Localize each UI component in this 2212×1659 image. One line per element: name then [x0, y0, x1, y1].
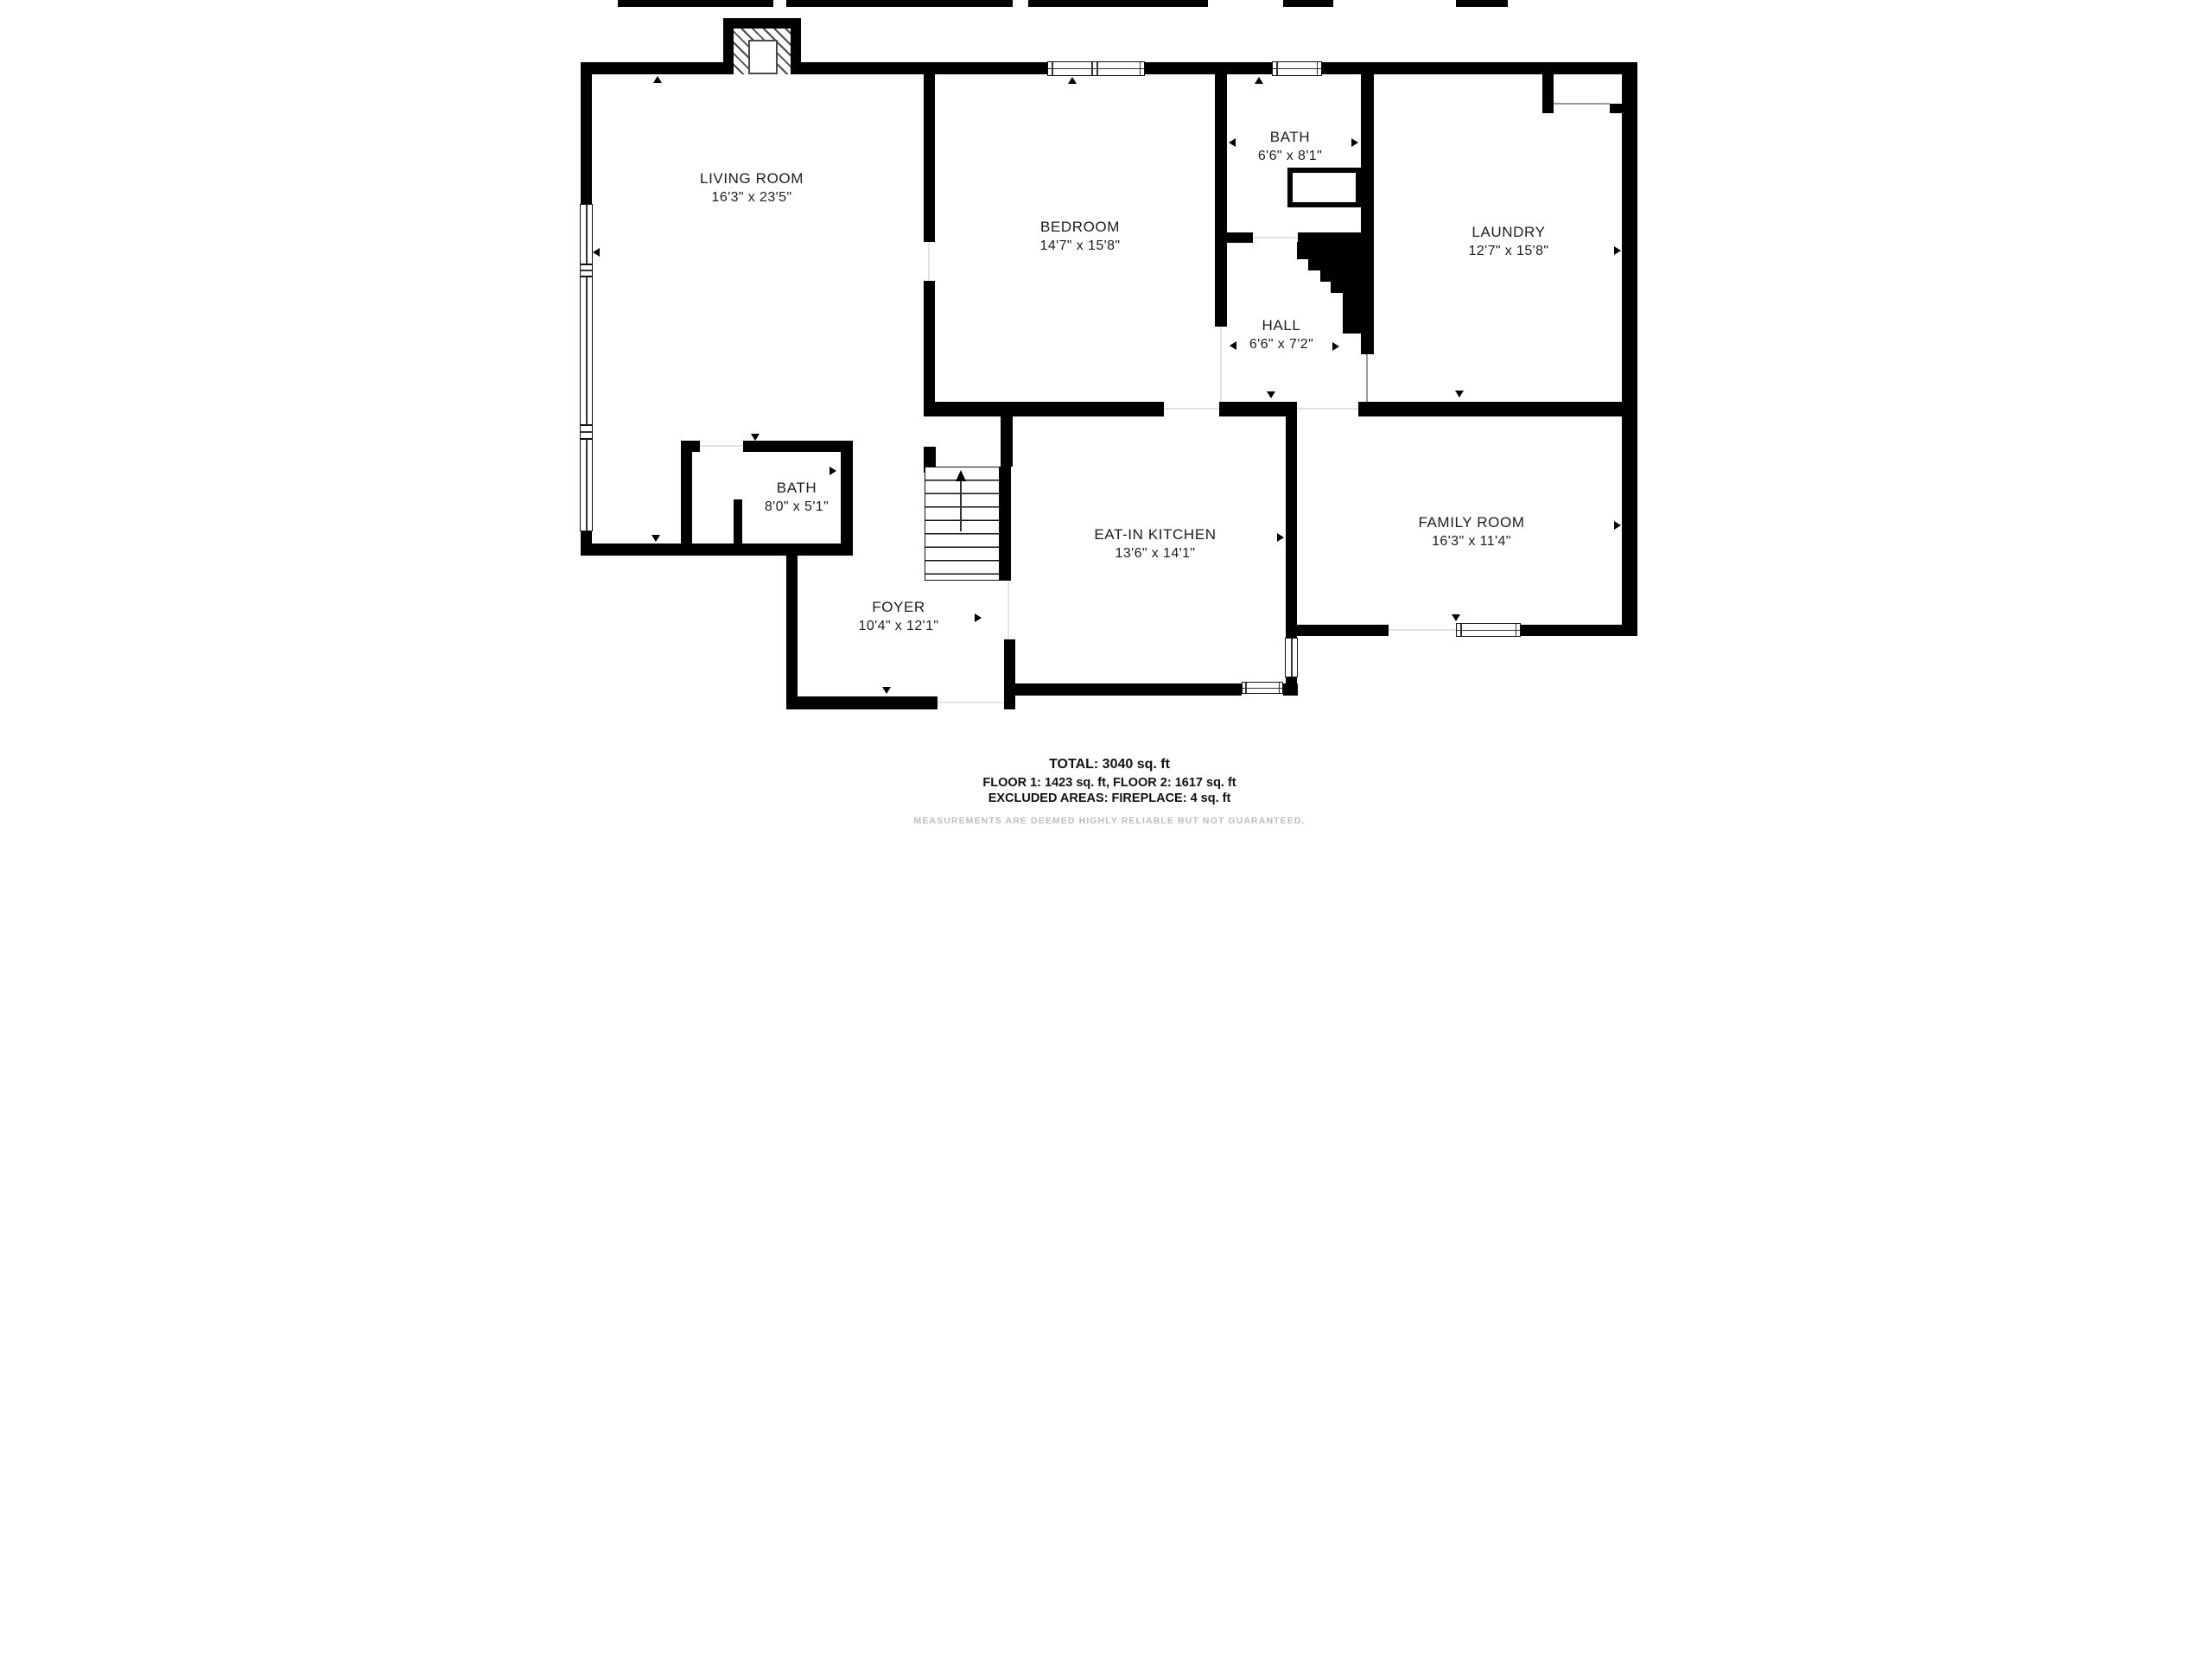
window-mullion	[1091, 62, 1093, 75]
footer-floors: FLOOR 1: 1423 sq. ft, FLOOR 2: 1617 sq. …	[982, 776, 1236, 790]
door-marker	[829, 467, 836, 475]
door-marker	[1217, 227, 1224, 236]
door-marker	[652, 535, 660, 542]
wall-segment	[786, 556, 798, 709]
wall-segment	[743, 441, 853, 452]
wall-segment	[1215, 243, 1227, 327]
opening-line	[1297, 408, 1358, 410]
door-marker	[1614, 521, 1621, 530]
room-dims: 6'6" x 7'2"	[1249, 335, 1313, 354]
room-label-bath-upper: BATH 6'6" x 8'1"	[1258, 128, 1322, 166]
window-mullion	[1279, 683, 1281, 693]
room-dims: 16'3" x 23'5"	[700, 188, 804, 207]
room-label-hall: HALL 6'6" x 7'2"	[1249, 316, 1313, 354]
window	[580, 204, 593, 264]
room-name: HALL	[1249, 316, 1313, 335]
window	[580, 439, 593, 531]
wall-thin-line	[1366, 354, 1368, 402]
room-label-eat-in-kitchen: EAT-IN KITCHEN 13'6" x 14'1"	[1094, 525, 1216, 563]
wall-segment	[681, 441, 700, 452]
door-marker	[1229, 138, 1236, 147]
window-mullion	[586, 440, 588, 531]
wall-segment	[1286, 677, 1297, 696]
room-dims: 13'6" x 14'1"	[1094, 544, 1216, 563]
wall-segment	[581, 74, 592, 204]
upper-stairs	[1308, 259, 1343, 270]
stairs-side-wall	[1000, 467, 1011, 581]
wall-segment	[1004, 683, 1242, 696]
room-dims: 14'7" x 15'8"	[1040, 237, 1121, 256]
door-marker	[1230, 341, 1236, 350]
opening-line	[1389, 629, 1456, 631]
window	[1285, 638, 1298, 677]
room-label-bath-lower: BATH 8'0" x 5'1"	[765, 479, 829, 517]
wall-segment	[1219, 402, 1297, 416]
wall-segment	[841, 441, 853, 556]
footer-disclaimer: MEASUREMENTS ARE DEEMED HIGHLY RELIABLE …	[913, 816, 1305, 826]
wall-segment	[924, 402, 1164, 416]
wall-segment	[1283, 0, 1333, 7]
wall-segment	[581, 543, 853, 556]
window-mullion	[1460, 624, 1462, 636]
upper-stairs	[1297, 242, 1361, 259]
wall-segment	[1622, 62, 1637, 636]
upper-stairs	[1331, 282, 1343, 293]
wall-segment	[1286, 625, 1389, 636]
door-marker	[1452, 614, 1460, 621]
stairs-up-arrow	[960, 481, 962, 531]
window-mullion	[1273, 68, 1321, 69]
room-dims: 12'7" x 15'8"	[1469, 242, 1549, 261]
door-marker	[1267, 391, 1275, 398]
door-marker	[1255, 77, 1263, 84]
door-marker	[751, 434, 760, 441]
floor-plan-page: LIVING ROOM 16'3" x 23'5" BEDROOM 14'7" …	[553, 0, 1659, 829]
opening-line	[1253, 237, 1298, 238]
door-marker	[1614, 246, 1621, 255]
window-band	[580, 425, 593, 439]
upper-stairs	[1343, 259, 1361, 321]
window-mullion	[1245, 683, 1247, 693]
room-dims: 8'0" x 5'1"	[765, 498, 829, 517]
room-name: FAMILY ROOM	[1418, 513, 1524, 532]
opening-line	[928, 242, 930, 281]
wall-segment	[1358, 402, 1633, 416]
wall-segment	[924, 74, 935, 242]
wall-segment	[786, 696, 938, 709]
room-name: FOYER	[859, 598, 939, 617]
door-marker	[1351, 138, 1358, 147]
stairs-up-arrow-head	[956, 470, 966, 481]
room-label-family-room: FAMILY ROOM 16'3" x 11'4"	[1418, 513, 1524, 551]
window-mullion	[586, 205, 588, 264]
wall-segment	[1215, 74, 1227, 232]
wall-segment	[1361, 74, 1374, 354]
door-marker	[882, 687, 891, 694]
door-marker	[1332, 342, 1339, 351]
door-marker	[975, 613, 982, 622]
room-label-laundry: LAUNDRY 12'7" x 15'8"	[1469, 223, 1549, 261]
opening-line	[1164, 408, 1219, 410]
wall-segment	[924, 281, 935, 402]
upper-stairs	[1320, 270, 1343, 282]
room-dims: 6'6" x 8'1"	[1258, 147, 1322, 166]
room-label-living-room: LIVING ROOM 16'3" x 23'5"	[700, 169, 804, 207]
door-marker	[1455, 391, 1464, 397]
closet-wall	[1610, 104, 1622, 113]
opening-line	[1220, 327, 1222, 402]
wall-segment	[1028, 0, 1208, 7]
opening-line	[1007, 581, 1009, 639]
bath-vanity	[1287, 168, 1361, 207]
wall-segment	[618, 0, 773, 7]
window-mullion	[581, 431, 592, 433]
room-name: EAT-IN KITCHEN	[1094, 525, 1216, 544]
wall-segment	[1286, 416, 1297, 638]
door-marker	[1277, 533, 1284, 542]
window	[580, 276, 593, 425]
wall-segment	[681, 441, 692, 556]
wall-segment	[1004, 639, 1015, 709]
window	[1242, 682, 1283, 694]
upper-stairs	[1343, 321, 1361, 334]
room-label-foyer: FOYER 10'4" x 12'1"	[859, 598, 939, 636]
opening-line	[938, 702, 1004, 703]
wall-segment	[1521, 625, 1633, 636]
footer-excluded: EXCLUDED AREAS: FIREPLACE: 4 sq. ft	[988, 791, 1231, 805]
window-mullion	[1276, 62, 1278, 75]
door-marker	[653, 76, 662, 83]
footer-total: TOTAL: 3040 sq. ft	[1049, 757, 1170, 772]
window-band	[580, 264, 593, 276]
window-mullion	[1052, 62, 1053, 75]
opening-line	[700, 445, 743, 447]
room-name: LAUNDRY	[1469, 223, 1549, 242]
window-mullion	[1140, 62, 1141, 75]
wall-segment	[1001, 416, 1013, 467]
room-name: BEDROOM	[1040, 218, 1121, 237]
fireplace-firebox	[748, 40, 778, 74]
window-mullion	[1516, 624, 1517, 636]
room-name: BATH	[1258, 128, 1322, 147]
closet-wall	[1542, 74, 1554, 113]
window-mullion	[1243, 688, 1282, 689]
window-mullion	[586, 277, 588, 424]
staircase	[925, 467, 1000, 581]
window-mullion	[1096, 62, 1098, 75]
room-dims: 16'3" x 11'4"	[1418, 532, 1524, 551]
room-name: BATH	[765, 479, 829, 498]
wall-segment	[786, 0, 1013, 7]
window	[1456, 623, 1521, 637]
door-marker	[1068, 77, 1077, 84]
window-mullion	[581, 270, 592, 271]
room-label-bedroom: BEDROOM 14'7" x 15'8"	[1040, 218, 1121, 256]
window-mullion	[1457, 630, 1520, 631]
window	[1047, 61, 1145, 76]
wall-segment	[734, 499, 742, 556]
window-mullion	[1317, 62, 1319, 75]
door-marker	[593, 248, 600, 257]
room-dims: 10'4" x 12'1"	[859, 617, 939, 636]
closet-door-line	[1554, 103, 1610, 105]
wall-segment	[1456, 0, 1508, 7]
window	[1272, 61, 1322, 76]
room-name: LIVING ROOM	[700, 169, 804, 188]
window-mullion	[1291, 639, 1293, 677]
